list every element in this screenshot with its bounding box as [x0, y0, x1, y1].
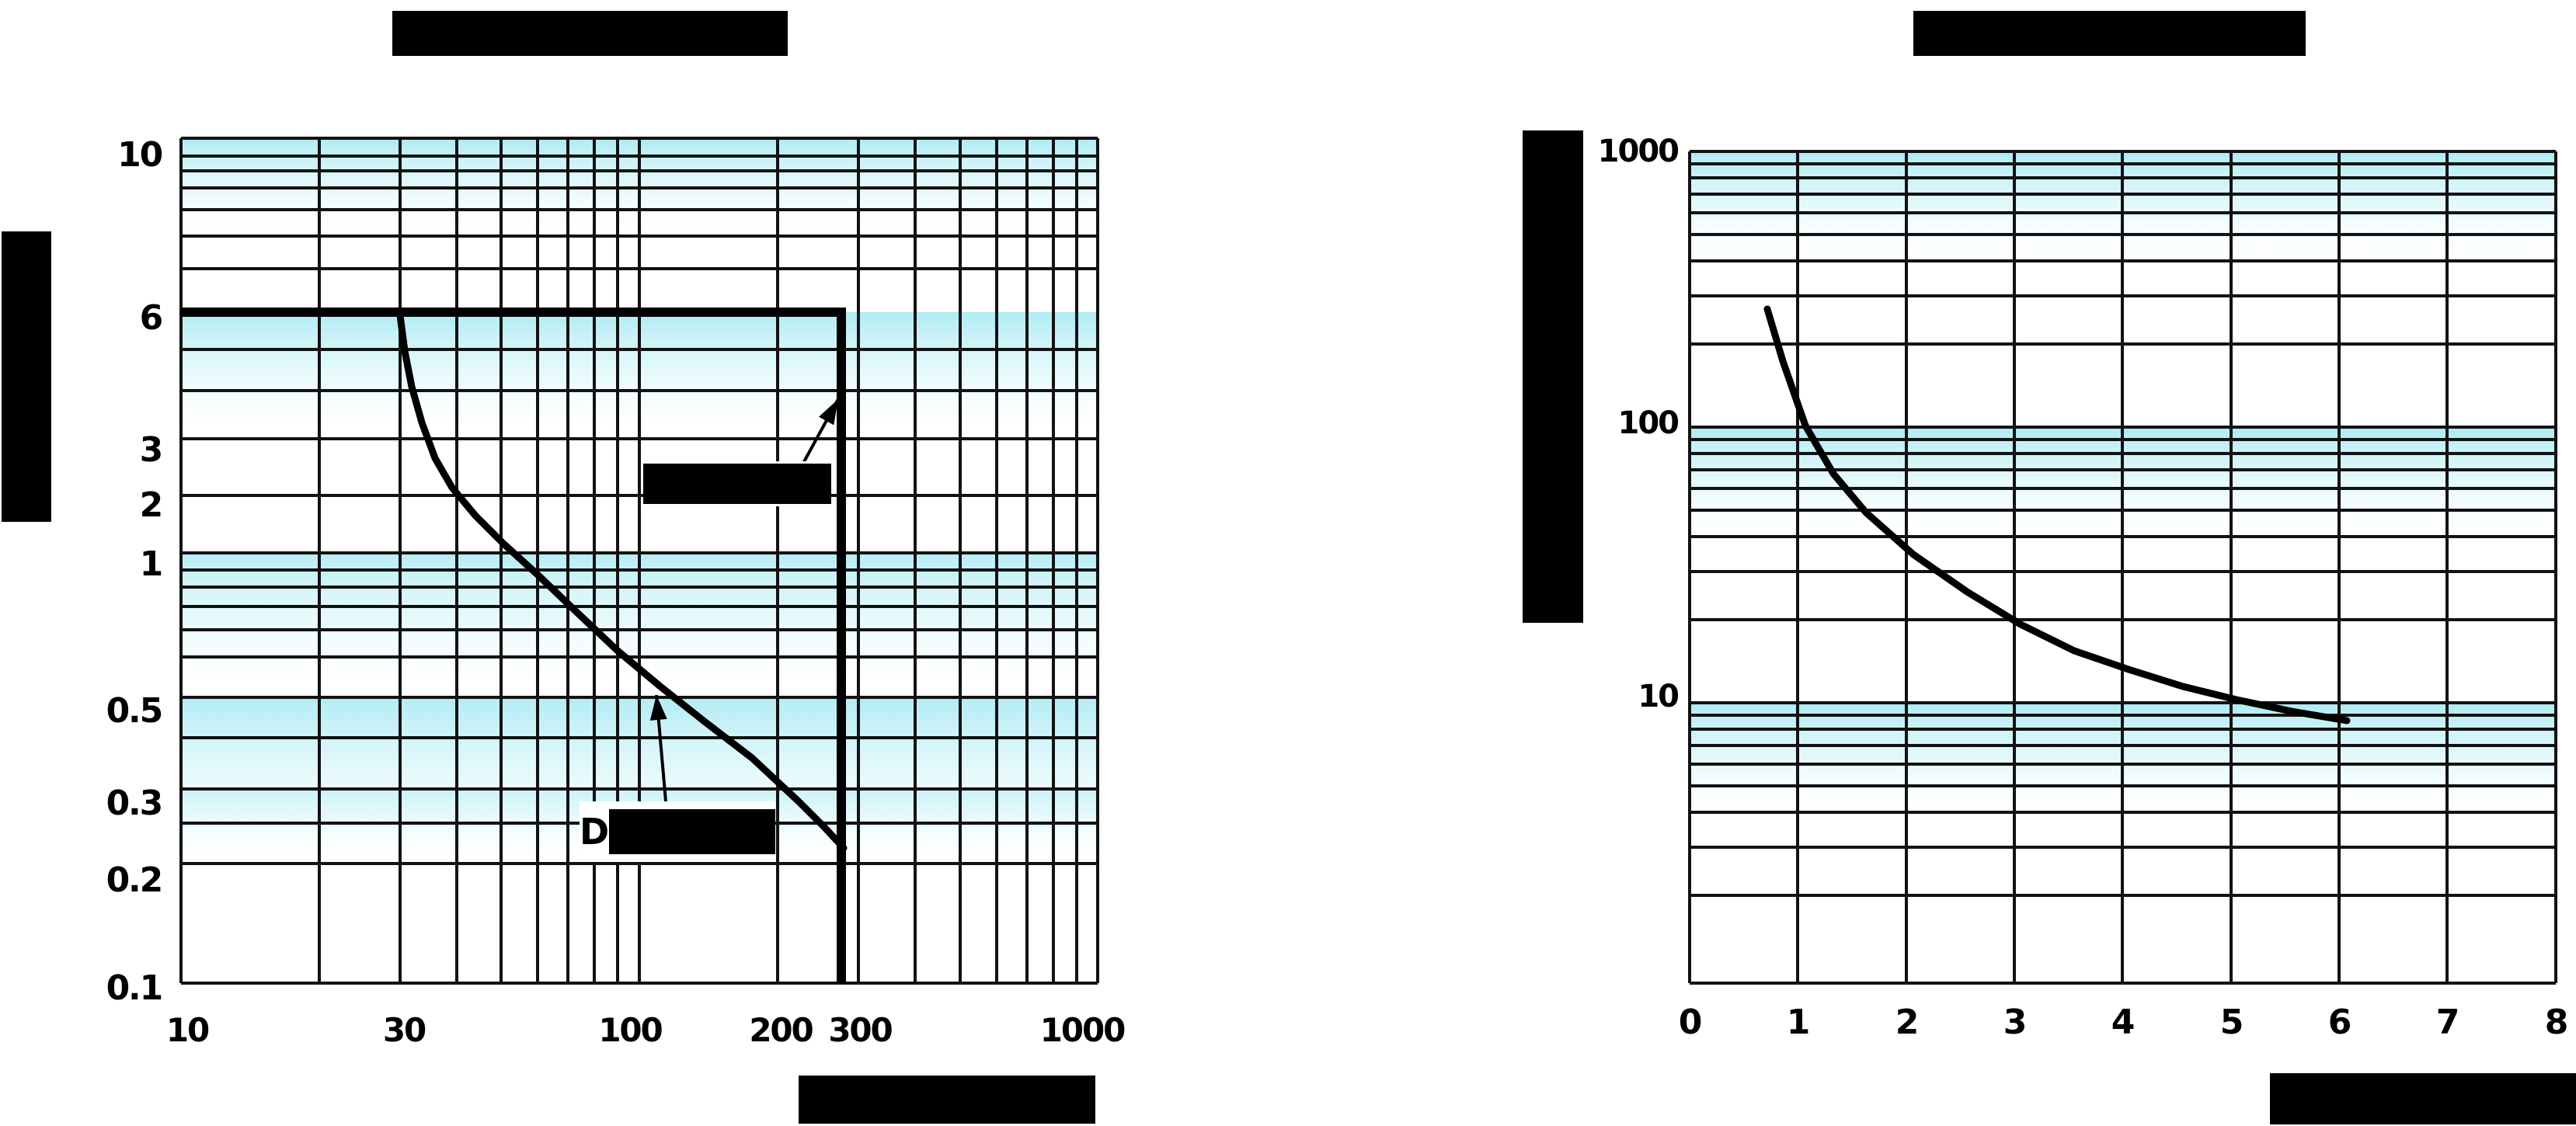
right-x-tick-3: 3	[2003, 1006, 2025, 1040]
left-y-axis-title-redacted: ████████	[2, 231, 51, 522]
left-y-tick-0-3: 0.3	[106, 787, 162, 821]
right-x-tick-8: 8	[2545, 1006, 2567, 1040]
left-x-tick-1000: 1000	[1040, 1014, 1125, 1047]
left-y-tick-2: 2	[140, 488, 162, 523]
left-y-tick-10: 10	[117, 138, 162, 172]
left-x-tick-100: 100	[598, 1014, 661, 1047]
left-y-tick-1: 1	[140, 547, 162, 582]
annotation-lower-prefix: D	[580, 814, 609, 850]
left-x-axis-title-redacted: ████████	[799, 1076, 1095, 1124]
annotation-box-upper: ████████	[643, 461, 831, 506]
left-y-tick-0-1: 0.1	[106, 971, 162, 1006]
right-chart-grid	[1690, 151, 2556, 983]
right-x-tick-7: 7	[2436, 1006, 2458, 1040]
right-y-axis-title-redacted: ██████████	[1523, 130, 1583, 623]
right-x-axis-title-redacted: ████████	[2270, 1073, 2576, 1124]
left-x-tick-10: 10	[166, 1014, 208, 1047]
page: ██████████ █████████ ████████ ██████████…	[0, 0, 2576, 1126]
charts-canvas	[0, 0, 2576, 1126]
right-y-tick-10: 10	[1638, 681, 1678, 712]
left-y-tick-3: 3	[140, 433, 162, 467]
right-y-tick-1000: 1000	[1598, 136, 1678, 167]
right-x-tick-4: 4	[2111, 1006, 2133, 1040]
right-x-tick-6: 6	[2328, 1006, 2350, 1040]
right-x-tick-5: 5	[2220, 1006, 2242, 1040]
left-chart-title-redacted: ██████████	[392, 11, 788, 56]
right-chart-title-redacted: █████████	[1913, 11, 2306, 56]
left-y-tick-6: 6	[140, 301, 162, 335]
annotation-box-lower: D ██████	[580, 801, 775, 862]
annotation-lower-redacted: ██████	[609, 809, 775, 854]
annotation-upper-redacted: ████████	[643, 464, 831, 504]
left-x-tick-300: 300	[828, 1014, 891, 1047]
left-y-tick-0-2: 0.2	[106, 864, 162, 898]
right-x-tick-2: 2	[1895, 1006, 1917, 1040]
right-x-tick-1: 1	[1787, 1006, 1808, 1040]
left-y-tick-0-5: 0.5	[106, 694, 162, 728]
left-x-tick-200: 200	[749, 1014, 812, 1047]
right-x-tick-0: 0	[1679, 1006, 1701, 1040]
right-y-tick-100: 100	[1618, 408, 1679, 439]
left-x-tick-30: 30	[383, 1014, 425, 1047]
